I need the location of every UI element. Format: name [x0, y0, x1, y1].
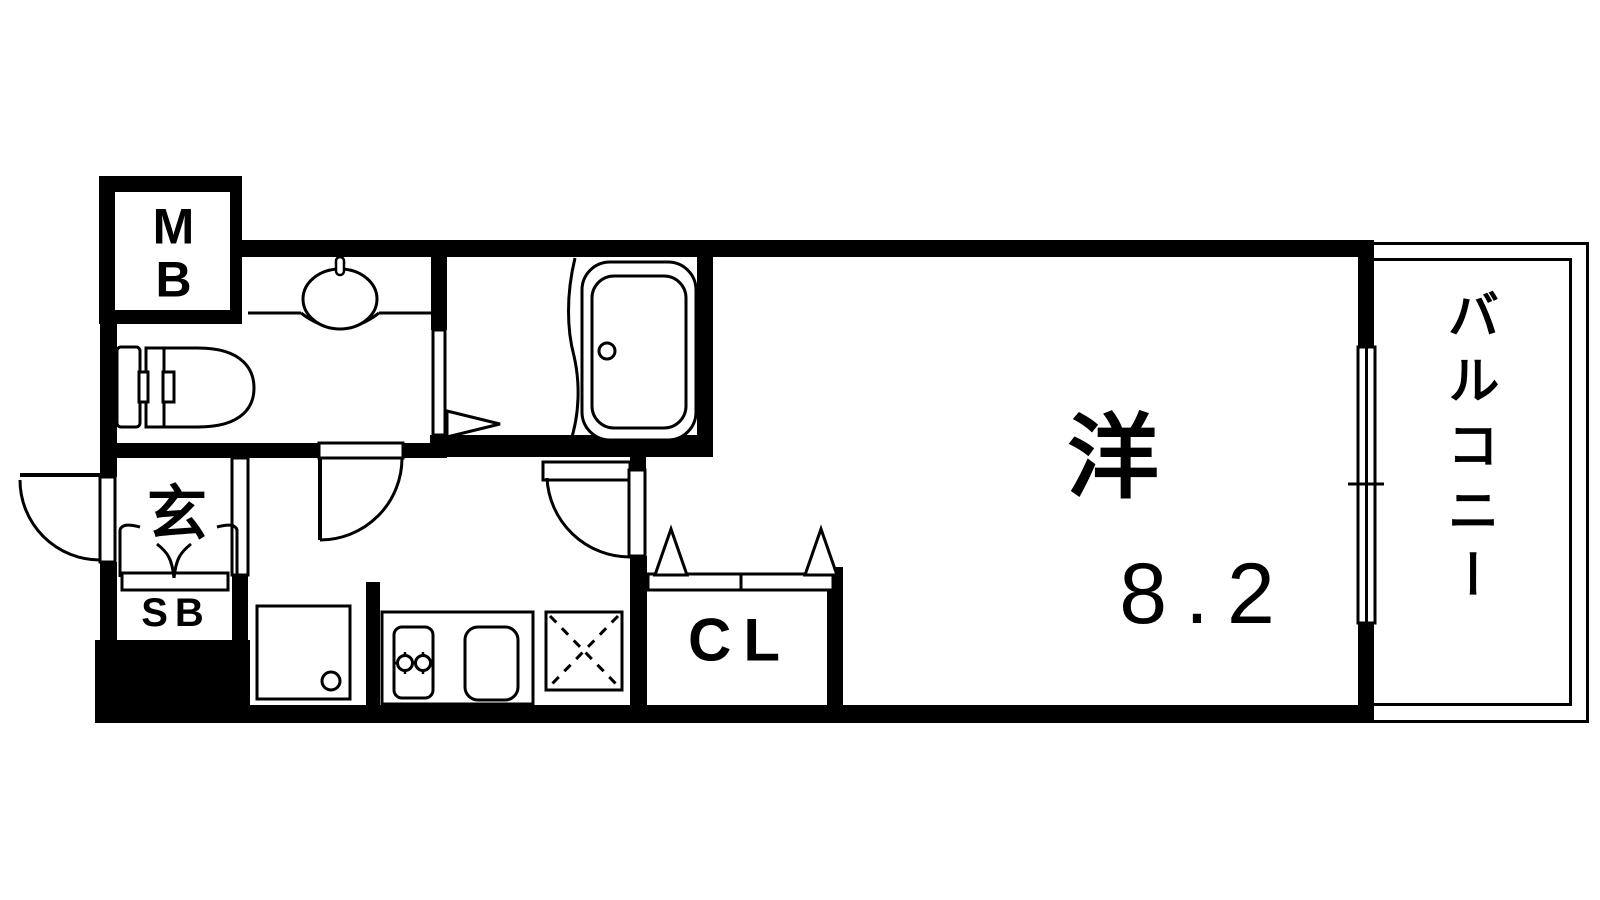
wall-window-top [1358, 255, 1374, 347]
entrance-door [20, 475, 115, 562]
floor-plan-drawing [0, 0, 1600, 900]
hall-step-edge [232, 458, 248, 575]
wall-bottom [95, 705, 1374, 723]
floor-plan: M B 玄 SB CL 洋 8.2 バルコニー [0, 0, 1600, 900]
wall-door-stub [630, 457, 646, 470]
wall-kitchen-left [366, 582, 380, 707]
main-room-door [543, 462, 645, 557]
closet-label: CL [688, 609, 792, 672]
wall-window-bottom [1358, 623, 1374, 717]
closet-bifold-doors [648, 529, 837, 590]
bath-door [433, 330, 500, 437]
wall-bath-left-upper [431, 257, 447, 330]
toilet [117, 347, 254, 427]
washing-machine-pan [257, 606, 350, 699]
washroom-door [319, 443, 403, 540]
vanity-sink [248, 257, 431, 329]
bath-drain [599, 343, 615, 359]
balcony-label: バルコニー [1442, 288, 1494, 613]
kitchen-counter [382, 612, 533, 704]
shoe-box-label: SB [141, 592, 211, 634]
main-room-size: 8.2 [1119, 549, 1293, 639]
bathtub [569, 258, 697, 443]
wall-left-lower [100, 562, 117, 642]
meter-box-label: M B [153, 201, 196, 306]
wall-sb-right [232, 575, 248, 707]
balcony-window [1348, 347, 1384, 623]
wall-washroom-bottom-left [100, 443, 319, 458]
main-room-label: 洋 [1067, 411, 1159, 508]
wall-closet-left [630, 556, 647, 707]
refrigerator-space [546, 612, 622, 690]
entrance-label: 玄 [147, 483, 207, 546]
wall-bath-right [697, 257, 713, 457]
wall-top [241, 240, 1374, 257]
